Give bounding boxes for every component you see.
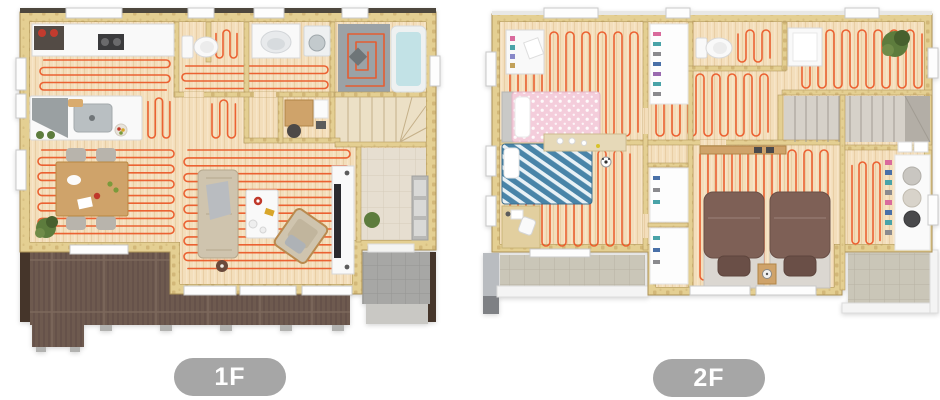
bed-1 [704, 192, 764, 288]
entrance-step [368, 244, 414, 252]
closet-top [650, 24, 688, 104]
balcony-left [483, 253, 648, 314]
balcony-railing-left [497, 286, 648, 297]
kitchen-island [30, 96, 142, 140]
washroom [252, 24, 330, 58]
bed-2 [770, 192, 830, 288]
throw-blanket [206, 181, 231, 220]
floor-plan-1f [16, 8, 440, 352]
toilet-2f [696, 38, 732, 58]
entrance-porch [362, 252, 430, 324]
plant-entrance [364, 212, 380, 228]
bath-water [396, 32, 421, 86]
desk [285, 100, 313, 126]
balcony-railing-right [842, 303, 938, 313]
floor-label-1f: 1F [174, 358, 286, 396]
toilet-tank [182, 36, 193, 58]
pillow-1 [718, 256, 750, 276]
floor-plan-graphics [0, 0, 940, 400]
floor-plan-2f [483, 8, 938, 314]
floor-plans-canvas: 1F 2F [0, 0, 940, 400]
toilet-1f [182, 36, 218, 58]
stove-unit [34, 26, 64, 50]
floor-label-1f-text: 1F [214, 363, 245, 392]
stairs-floor-2f [784, 96, 924, 142]
pillow-2 [784, 256, 816, 276]
floor-label-2f-text: 2F [693, 364, 724, 393]
balcony-right [842, 250, 938, 313]
floor-label-2f: 2F [653, 359, 765, 397]
desk-chair [287, 124, 301, 138]
blue-bed [502, 144, 592, 204]
side-wall-shadow-left [20, 252, 30, 322]
cutting-board [68, 99, 83, 107]
soccer-ball [601, 157, 611, 167]
tv-screen [334, 184, 341, 258]
